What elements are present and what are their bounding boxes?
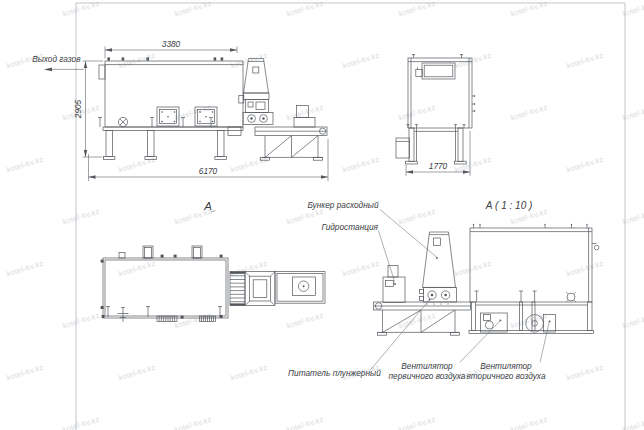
conveyor [374, 302, 471, 335]
primary-air-fan-label-line1: Вентилятор [401, 361, 453, 371]
view-a-title: А [203, 200, 212, 212]
secondary-fan-leader [540, 322, 549, 363]
sheet-border [76, 3, 625, 430]
feed-hopper-label: Бункер расходный [307, 200, 379, 210]
dimension-2905 [83, 61, 104, 157]
anchor-symbol [118, 308, 129, 323]
hopper-top-view [245, 272, 275, 306]
ladder-platform [230, 272, 245, 306]
dim-2905-label: 2905 [73, 99, 83, 119]
callouts: Бункер расходный Гидростанция Питатель п… [288, 200, 549, 381]
hatch-panel [157, 107, 179, 126]
hatched-strip [200, 316, 216, 321]
feed-hopper-tower [423, 232, 456, 287]
dim-6170-label: 6170 [199, 166, 218, 176]
plunger-feeder-unit [419, 287, 456, 302]
end-elevation-view: 1770 [396, 54, 475, 176]
secondary-air-fan-label-line2: вторичного воздуха [466, 371, 545, 381]
plan-view [101, 246, 325, 322]
hatched-strip [157, 316, 177, 321]
dim-3380-label: 3380 [162, 39, 181, 49]
valve-symbol [566, 292, 576, 302]
primary-air-fan-label-line2: первичного воздуха [389, 371, 466, 381]
primary-fan-leader [460, 321, 500, 363]
plunger-feeder-unit [243, 112, 273, 124]
valve-symbol [118, 117, 127, 126]
hydraulic-station-unit [383, 266, 405, 303]
dim-1770-label: 1770 [429, 161, 448, 171]
secondary-air-fan-label-line1: Вентилятор [480, 361, 532, 371]
top-opening [416, 63, 455, 79]
gas-outlet-flange [99, 65, 105, 79]
section-a-view [374, 224, 599, 335]
side-elevation-view: 3380 2905 6170 Выход газов [32, 39, 328, 181]
gas-outlet-arrow-icon [44, 68, 84, 72]
engineering-drawing: 3380 2905 6170 Выход газов [0, 0, 644, 430]
hydraulic-station-leader [378, 231, 394, 282]
furnace-body [470, 224, 599, 302]
hatch-panel [195, 107, 217, 126]
hydraulic-station-label: Гидростанция [321, 222, 378, 232]
drawing-sheet: kotel-kv.kzkotel-kv.kzkotel-kv.kzkotel-k… [0, 0, 644, 430]
view-a-scale-title: А ( 1 : 10 ) [485, 200, 533, 211]
conveyor-top-view [275, 272, 325, 304]
gas-outlet-label: Выход газов [32, 54, 81, 64]
primary-air-fan-unit [481, 313, 508, 332]
secondary-air-fan-unit [526, 315, 556, 333]
plunger-feeder-label: Питатель плунжерный [288, 368, 381, 378]
feed-hopper-leader [380, 210, 437, 258]
